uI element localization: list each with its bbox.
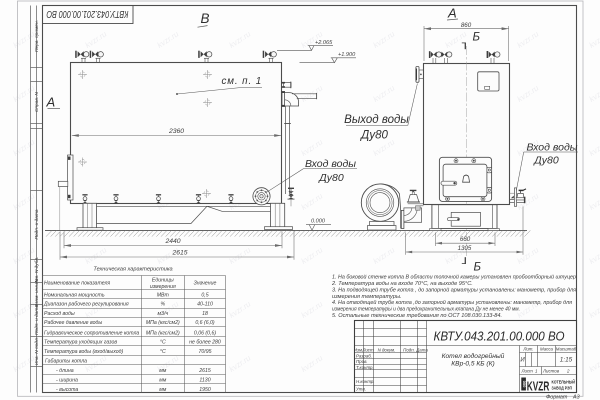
svg-text:МВт: МВт — [157, 292, 170, 298]
svg-text:Б: Б — [473, 32, 481, 44]
svg-text:Масштаб: Масштаб — [556, 347, 577, 352]
svg-text:И: И — [520, 358, 525, 364]
svg-text:Габариты котла: Габариты котла — [45, 358, 87, 364]
svg-text:Наименование показателя: Наименование показателя — [44, 281, 110, 287]
svg-text:660: 660 — [460, 236, 471, 243]
svg-text:Листов: Листов — [542, 369, 560, 374]
svg-text:Температура воды (вход/выход): Температура воды (вход/выход) — [44, 349, 123, 355]
svg-text:1130: 1130 — [199, 377, 210, 383]
svg-text:см. п. 1: см. п. 1 — [222, 76, 263, 87]
svg-text:мм: мм — [159, 387, 167, 393]
svg-text:1. На боковой стенке котла В: 1. На боковой стенке котла В области топ… — [332, 274, 576, 281]
svg-text:Перв. примен.: Перв. примен. — [34, 20, 40, 52]
svg-text:Вход воды: Вход воды — [305, 158, 356, 170]
svg-text:Техническая характеристика: Техническая характеристика — [93, 267, 172, 273]
svg-text:Пров.: Пров. — [356, 359, 368, 364]
svg-text:м3/ч: м3/ч — [158, 311, 169, 317]
svg-text:°С: °С — [160, 349, 166, 355]
svg-text:измерения: измерения — [150, 284, 176, 290]
svg-text:Дата: Дата — [415, 347, 428, 352]
svg-text:Справ. N: Справ. N — [34, 91, 40, 112]
svg-text:А: А — [447, 6, 457, 21]
svg-text:Расход воды: Расход воды — [44, 311, 75, 317]
svg-text:МПа (кгс/см2): МПа (кгс/см2) — [146, 320, 180, 326]
svg-text:измерения температуры и два пр: измерения температуры и два предохраните… — [332, 306, 520, 312]
svg-text:Значение: Значение — [194, 281, 217, 287]
svg-text:2. Температура воды на входе: 2. Температура воды на входе 70°С, на вы… — [331, 281, 473, 287]
svg-text:0,5: 0,5 — [201, 292, 208, 298]
svg-text:В: В — [201, 11, 210, 26]
svg-text:Лит.: Лит. — [522, 347, 533, 352]
svg-text:мм: мм — [159, 368, 167, 374]
svg-text:А: А — [46, 95, 56, 110]
svg-text:А3: А3 — [572, 395, 580, 400]
svg-text:МПа (кгс/см2): МПа (кгс/см2) — [146, 330, 180, 336]
svg-text:°С: °С — [160, 340, 166, 346]
svg-text:- высота: - высота — [56, 387, 78, 393]
svg-text:2440: 2440 — [164, 238, 180, 245]
svg-text:Лист: Лист — [361, 347, 374, 352]
svg-text:Масса: Масса — [540, 347, 554, 352]
svg-text:2360: 2360 — [168, 128, 184, 135]
svg-text:Ду80: Ду80 — [533, 155, 559, 167]
svg-text:Формат: Формат — [546, 395, 568, 400]
svg-text:2615: 2615 — [198, 368, 211, 374]
svg-text:Температура уходящих газов: Температура уходящих газов — [44, 340, 117, 346]
svg-text:Взам. инв. N: Взам. инв. N — [34, 279, 40, 307]
svg-text:%: % — [160, 302, 165, 308]
svg-text:+1.900: +1.900 — [338, 52, 356, 58]
svg-text:0,06 (0,6): 0,06 (0,6) — [194, 330, 216, 336]
svg-text:Н.контр.: Н.контр. — [356, 379, 375, 384]
svg-text:Диапазон рабочего регулировани: Диапазон рабочего регулирования — [43, 302, 129, 308]
svg-text:860: 860 — [461, 22, 472, 29]
svg-text:мм: мм — [159, 377, 167, 383]
svg-text:+2.065: +2.065 — [315, 40, 333, 46]
svg-text:Котел водогрейный: Котел водогрейный — [442, 352, 505, 360]
svg-text:1305: 1305 — [458, 245, 472, 252]
svg-text:0.000: 0.000 — [311, 219, 326, 225]
svg-text:Ду80: Ду80 — [318, 172, 344, 184]
svg-text:КВТУ.043.201.00.000 ВО: КВТУ.043.201.00.000 ВО — [47, 8, 129, 19]
svg-text:Т.контр.: Т.контр. — [356, 365, 374, 370]
svg-text:Лист: Лист — [521, 369, 534, 374]
svg-text:КВр-0,5 КБ (К): КВр-0,5 КБ (К) — [451, 361, 494, 368]
svg-text:- длина: - длина — [56, 368, 74, 374]
svg-text:измерения температуры.: измерения температуры. — [332, 294, 402, 300]
svg-text:2615: 2615 — [171, 250, 187, 257]
svg-text:N докум.: N докум. — [378, 347, 396, 352]
svg-text:Подп. и дата: Подп. и дата — [34, 209, 40, 239]
svg-text:Утв.: Утв. — [356, 387, 366, 392]
svg-text:70/95: 70/95 — [199, 349, 212, 355]
svg-text:Подп.: Подп. — [403, 347, 415, 352]
svg-text:Единицы: Единицы — [152, 278, 174, 284]
svg-text:- ширина: - ширина — [56, 377, 78, 383]
svg-text:1950: 1950 — [199, 387, 211, 393]
svg-text:Инв. N подл.: Инв. N подл. — [34, 337, 40, 365]
svg-text:2: 2 — [566, 369, 570, 374]
svg-text:18: 18 — [202, 311, 208, 317]
svg-text:ЗАВОД РЭП: ЗАВОД РЭП — [552, 385, 573, 390]
svg-text:Рабочее давление воды: Рабочее давление воды — [44, 320, 102, 326]
svg-text:KVZR: KVZR — [527, 378, 550, 393]
svg-text:Ду80: Ду80 — [359, 129, 388, 141]
svg-text:3. На подводящей трубе котла: 3. На подводящей трубе котла , до запорн… — [332, 286, 576, 293]
svg-text:КОТЕЛЬНЫЙ: КОТЕЛЬНЫЙ — [552, 379, 576, 384]
svg-text:1:15: 1:15 — [560, 357, 573, 364]
svg-text:0,6 (6,0): 0,6 (6,0) — [195, 320, 215, 326]
svg-text:5. Остальные технические треб: 5. Остальные технические требования по О… — [332, 313, 502, 319]
svg-text:Подп. и дата: Подп. и дата — [34, 305, 40, 335]
svg-text:Разраб.: Разраб. — [356, 354, 372, 359]
svg-text:Номинальная мощность: Номинальная мощность — [44, 292, 105, 298]
svg-text:4. На отводящей трубе котла ,: 4. На отводящей трубе котла ,до запорной… — [332, 299, 572, 306]
svg-text:КВТУ.043.201.00.000 ВО: КВТУ.043.201.00.000 ВО — [434, 329, 565, 344]
svg-text:не более 280: не более 280 — [189, 340, 221, 346]
svg-text:Выход воды: Выход воды — [344, 114, 409, 126]
svg-text:Б: Б — [474, 262, 482, 274]
svg-text:40-110: 40-110 — [197, 302, 213, 308]
svg-text:Гидравлическое сопротивление к: Гидравлическое сопротивление котла — [44, 330, 139, 336]
